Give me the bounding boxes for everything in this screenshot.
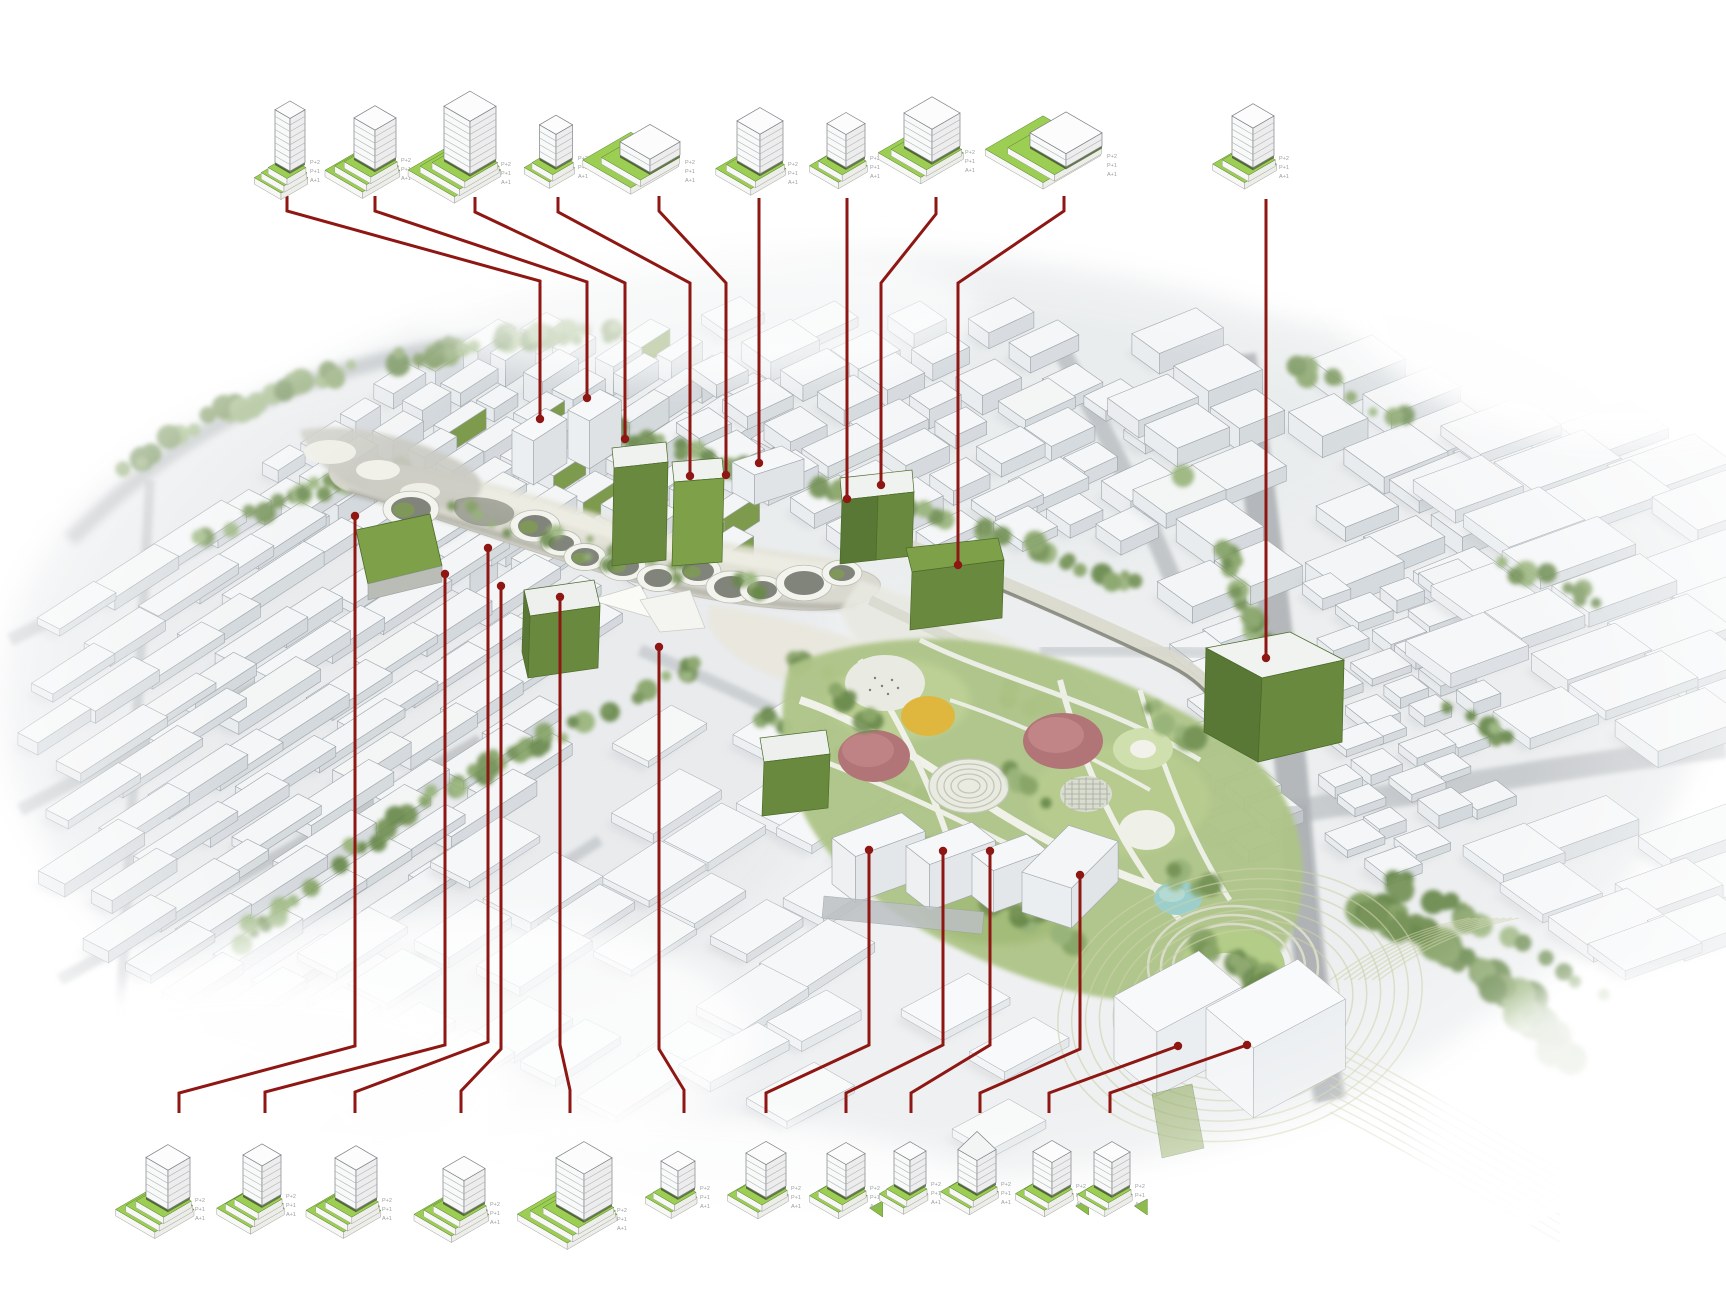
svg-text:P+1: P+1 (685, 169, 695, 175)
svg-text:P+1: P+1 (788, 171, 798, 177)
svg-text:A+1: A+1 (965, 168, 975, 174)
svg-text:A+1: A+1 (286, 1212, 296, 1218)
svg-text:P+2: P+2 (788, 162, 798, 168)
svg-text:P+1: P+1 (931, 1191, 941, 1197)
svg-text:P+2: P+2 (501, 162, 511, 168)
svg-text:P+1: P+1 (1001, 1191, 1011, 1197)
svg-text:P+1: P+1 (195, 1207, 205, 1213)
svg-text:P+2: P+2 (286, 1194, 296, 1200)
svg-text:P+2: P+2 (1001, 1182, 1011, 1188)
svg-text:P+2: P+2 (1135, 1184, 1145, 1190)
svg-text:P+1: P+1 (1279, 165, 1289, 171)
svg-text:P+1: P+1 (1135, 1193, 1145, 1199)
svg-text:P+1: P+1 (310, 169, 320, 175)
svg-text:P+2: P+2 (617, 1208, 627, 1214)
svg-text:P+1: P+1 (870, 1195, 880, 1201)
svg-text:P+2: P+2 (1076, 1184, 1086, 1190)
svg-text:A+1: A+1 (490, 1220, 500, 1226)
svg-text:P+2: P+2 (490, 1202, 500, 1208)
svg-text:A+1: A+1 (685, 178, 695, 184)
svg-text:P+1: P+1 (965, 159, 975, 165)
svg-text:P+2: P+2 (685, 160, 695, 166)
svg-text:A+1: A+1 (501, 180, 511, 186)
svg-text:A+1: A+1 (578, 174, 588, 180)
svg-text:P+1: P+1 (617, 1217, 627, 1223)
svg-text:P+2: P+2 (791, 1186, 801, 1192)
svg-text:A+1: A+1 (931, 1200, 941, 1206)
svg-text:P+1: P+1 (791, 1195, 801, 1201)
svg-text:A+1: A+1 (788, 180, 798, 186)
svg-text:P+2: P+2 (931, 1182, 941, 1188)
svg-text:P+1: P+1 (700, 1195, 710, 1201)
svg-text:P+2: P+2 (382, 1198, 392, 1204)
svg-text:A+1: A+1 (1279, 174, 1289, 180)
svg-text:P+1: P+1 (870, 165, 880, 171)
svg-text:P+1: P+1 (382, 1207, 392, 1213)
svg-text:A+1: A+1 (870, 174, 880, 180)
svg-text:A+1: A+1 (195, 1216, 205, 1222)
svg-text:A+1: A+1 (791, 1204, 801, 1210)
svg-text:A+1: A+1 (1001, 1200, 1011, 1206)
svg-text:A+1: A+1 (1107, 172, 1117, 178)
svg-text:P+2: P+2 (1107, 154, 1117, 160)
svg-text:P+2: P+2 (1279, 156, 1289, 162)
svg-text:P+2: P+2 (965, 150, 975, 156)
svg-text:P+2: P+2 (700, 1186, 710, 1192)
svg-text:A+1: A+1 (382, 1216, 392, 1222)
svg-text:P+1: P+1 (286, 1203, 296, 1209)
svg-text:P+1: P+1 (1107, 163, 1117, 169)
svg-text:A+1: A+1 (1135, 1202, 1145, 1208)
svg-text:A+1: A+1 (617, 1226, 627, 1232)
svg-text:A+1: A+1 (700, 1204, 710, 1210)
svg-text:A+1: A+1 (870, 1204, 880, 1210)
svg-text:P+2: P+2 (195, 1198, 205, 1204)
svg-text:P+2: P+2 (870, 1186, 880, 1192)
svg-text:P+2: P+2 (401, 158, 411, 164)
svg-text:A+1: A+1 (310, 178, 320, 184)
svg-text:P+1: P+1 (501, 171, 511, 177)
svg-text:P+2: P+2 (310, 160, 320, 166)
svg-text:P+1: P+1 (490, 1211, 500, 1217)
